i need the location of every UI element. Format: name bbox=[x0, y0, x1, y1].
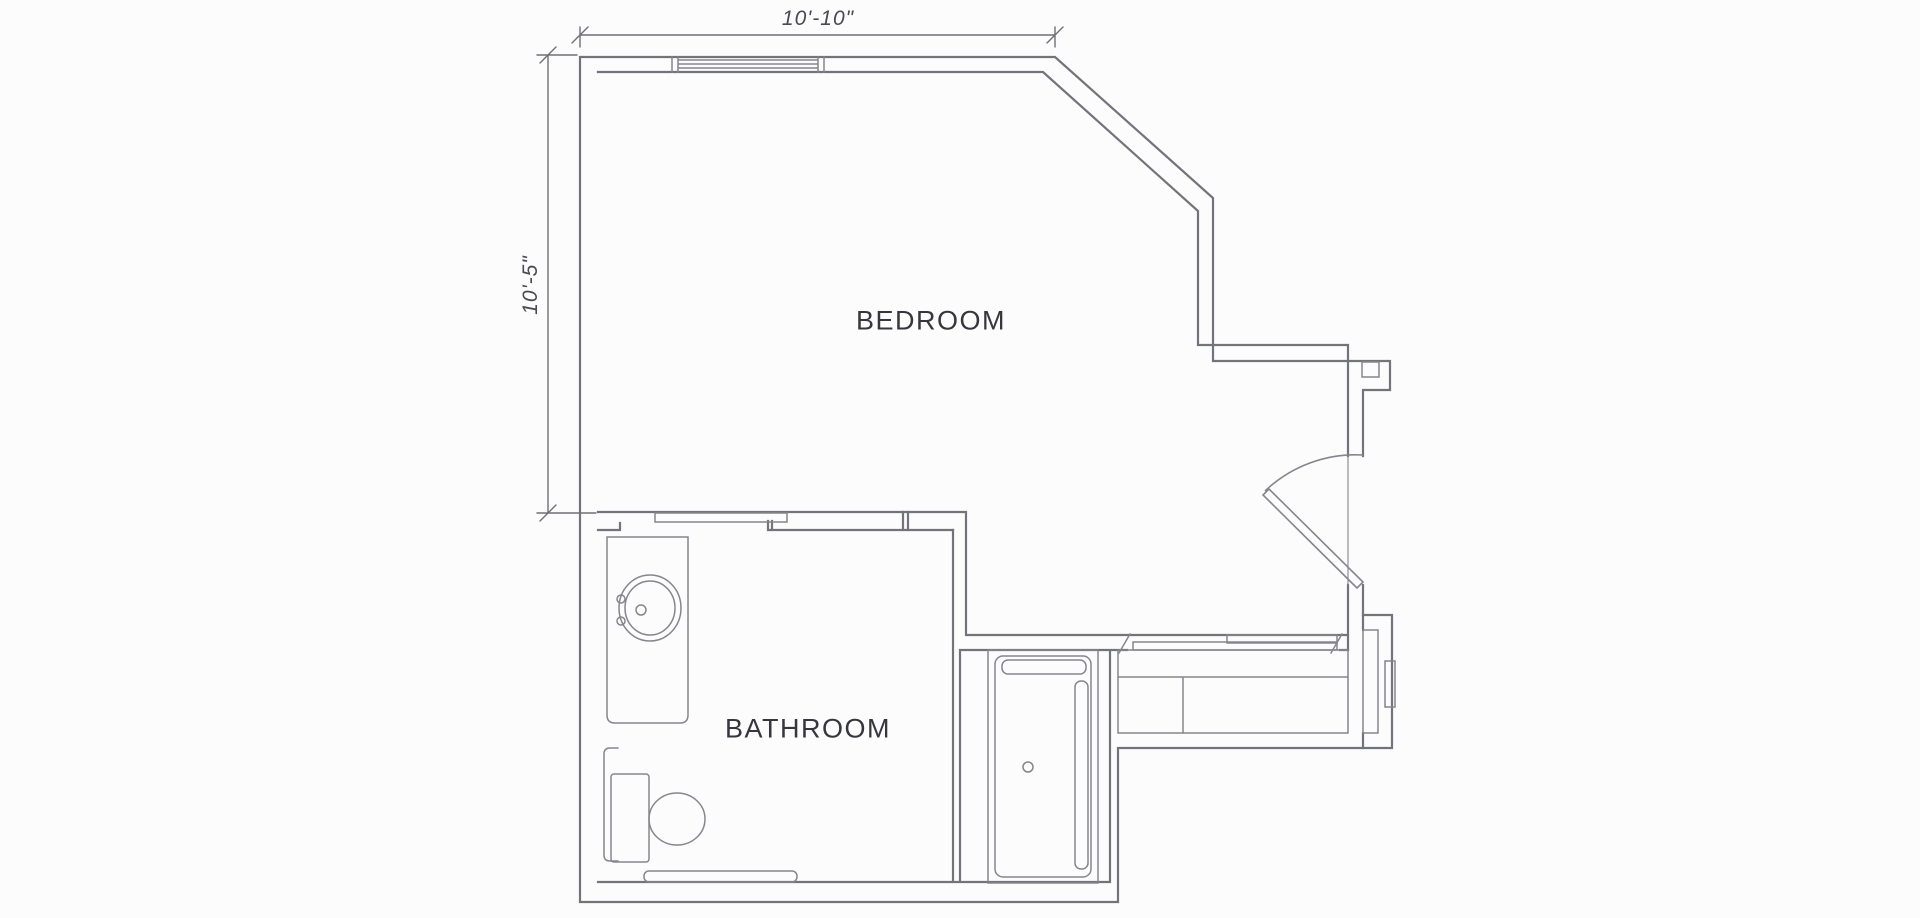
dimension-label-height: 10'-5" bbox=[519, 255, 543, 315]
dimension-label-width: 10'-10" bbox=[782, 7, 854, 31]
room-label-bedroom: BEDROOM bbox=[856, 306, 1006, 337]
floor-plan-drawing bbox=[0, 0, 1920, 918]
floor-plan-canvas: BEDROOM BATHROOM 10'-10" 10'-5" bbox=[0, 0, 1920, 918]
room-label-bathroom: BATHROOM bbox=[725, 714, 891, 745]
